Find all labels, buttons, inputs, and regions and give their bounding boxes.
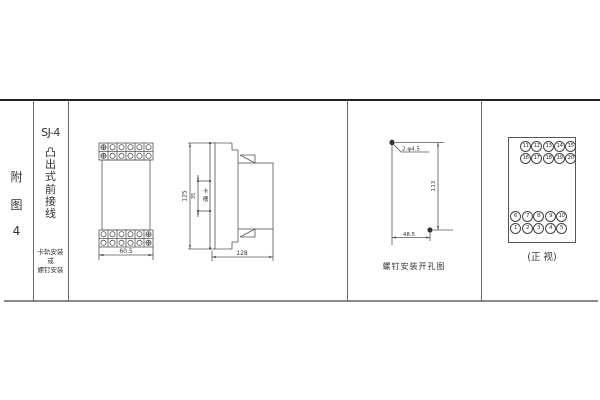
table-divider-2: [68, 100, 69, 301]
type-char: 线: [45, 208, 56, 220]
table-bottom-border: [4, 300, 598, 302]
terminal-3: 3: [533, 223, 544, 234]
terminal-10: 10: [556, 211, 567, 222]
side-depth-dim: 128: [236, 250, 248, 257]
table-divider-4: [481, 100, 482, 301]
mounting-hole-top: [389, 140, 394, 145]
rail-slot-label-char: 卡: [203, 187, 209, 195]
mount-line: 螺钉安装: [33, 266, 68, 275]
table-top-border: [0, 99, 600, 101]
drill-height-dim: 113: [431, 180, 437, 191]
front-width-dim: 60.5: [119, 248, 133, 255]
type-char: 式: [45, 171, 56, 183]
terminal-20: 20: [565, 153, 576, 164]
figure-index: 附 图 4: [0, 168, 33, 238]
terminal-16: 16: [520, 153, 531, 164]
figure-sheet: 附 图 4 SJ-4 凸 出 式 前 接 线 卡轨安装 或 螺钉安装: [0, 0, 600, 400]
terminal-5: 5: [556, 223, 567, 234]
terminal-1: 1: [510, 223, 521, 234]
terminal-2: 2: [522, 223, 533, 234]
hole-size-label: 2-φ4.5: [402, 147, 420, 153]
model-label: SJ-4: [33, 126, 68, 139]
figure-index-char: 4: [13, 224, 21, 238]
figure-index-char: 附: [10, 168, 22, 185]
terminal-6: 6: [510, 211, 521, 222]
mount-line: 卡轨安装: [33, 248, 68, 257]
terminal-19: 19: [554, 153, 565, 164]
type-char: 前: [45, 184, 56, 196]
drill-diagram-caption: 螺钉安装开孔图: [358, 261, 470, 272]
terminal-14: 14: [554, 141, 565, 152]
terminal-7: 7: [522, 211, 533, 222]
terminal-18: 18: [543, 153, 554, 164]
side-height-dim: 125: [182, 190, 189, 202]
terminal-8: 8: [533, 211, 544, 222]
terminal-11: 11: [520, 141, 531, 152]
mounting-hole-bottom: [427, 227, 432, 232]
side-view-drawing: 125 35 卡 槽 128: [162, 134, 282, 266]
terminal-15: 15: [565, 141, 576, 152]
drill-hole-diagram: 2-φ4.5 113 48.5: [358, 133, 470, 263]
terminal-4: 4: [545, 223, 556, 234]
table-divider-3: [347, 100, 348, 301]
terminal-9: 9: [545, 211, 556, 222]
rail-slot-label-char: 槽: [203, 195, 209, 203]
type-label: 凸 出 式 前 接 线: [33, 147, 68, 220]
rail-slot-dim: 35: [191, 193, 197, 199]
terminal-12: 12: [531, 141, 542, 152]
terminal-17: 17: [531, 153, 542, 164]
mount-method-label: 卡轨安装 或 螺钉安装: [33, 248, 68, 275]
figure-index-char: 图: [10, 196, 22, 213]
terminal-view-caption: (正 视): [500, 249, 584, 263]
mount-line: 或: [33, 257, 68, 266]
terminal-layout: 11 12 13 14 15 16 17 18 19 20 6 7 8 9 10…: [508, 137, 576, 243]
drill-width-dim: 48.5: [403, 232, 416, 238]
front-view-drawing: 60.5: [95, 136, 159, 264]
terminal-13: 13: [543, 141, 554, 152]
